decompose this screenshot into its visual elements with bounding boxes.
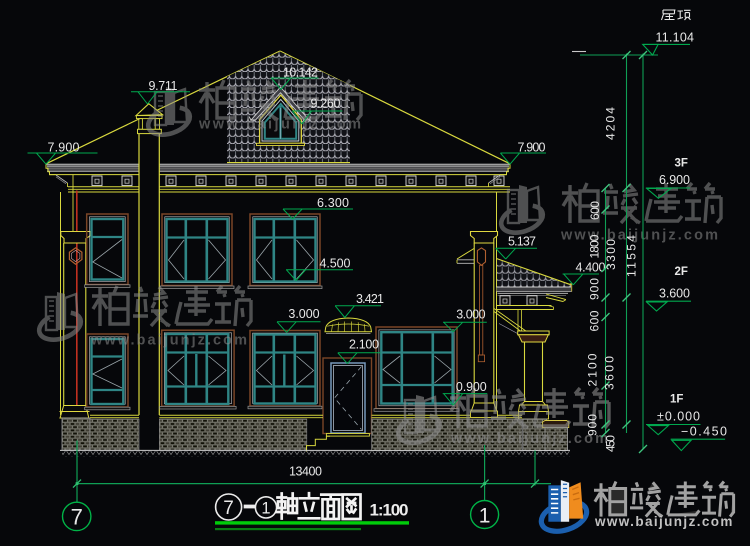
svg-text:7.900: 7.900 [48, 140, 80, 154]
svg-text:3300: 3300 [604, 239, 618, 270]
svg-text:900: 900 [588, 278, 602, 300]
svg-text:www.baijunjz.com: www.baijunjz.com [594, 514, 733, 529]
svg-text:3.600: 3.600 [659, 287, 690, 301]
svg-text:www.baijunjz.com: www.baijunjz.com [90, 333, 248, 349]
svg-text:−0.450: −0.450 [681, 425, 727, 439]
svg-text:13400: 13400 [289, 465, 322, 479]
svg-text:3F: 3F [675, 158, 688, 170]
svg-text:4204: 4204 [604, 107, 618, 140]
svg-text:9.711: 9.711 [149, 79, 178, 93]
svg-text:6.900: 6.900 [659, 173, 690, 187]
svg-text:7: 7 [71, 505, 83, 530]
svg-text:±0.000: ±0.000 [657, 410, 700, 424]
svg-text:4.500: 4.500 [320, 257, 351, 271]
svg-text:2100: 2100 [586, 353, 600, 386]
svg-text:1F: 1F [670, 394, 683, 406]
svg-text:600: 600 [588, 201, 602, 220]
svg-text:0.900: 0.900 [456, 380, 487, 394]
svg-text:600: 600 [588, 310, 602, 331]
svg-text:3.000: 3.000 [288, 307, 319, 321]
svg-text:www.baijunjz.com: www.baijunjz.com [198, 117, 362, 133]
svg-text:1: 1 [479, 505, 491, 528]
svg-text:5.137: 5.137 [508, 234, 536, 248]
svg-text:9.260: 9.260 [311, 96, 341, 110]
svg-text:6.300: 6.300 [317, 196, 349, 210]
svg-text:1800: 1800 [588, 234, 602, 258]
svg-text:1: 1 [261, 499, 270, 517]
svg-text:www.baijunjz.com: www.baijunjz.com [560, 228, 719, 244]
svg-text:10.142: 10.142 [283, 65, 318, 79]
svg-text:7.900: 7.900 [518, 140, 546, 154]
svg-text:900: 900 [586, 414, 600, 436]
svg-text:11.104: 11.104 [656, 31, 695, 45]
svg-text:7: 7 [223, 498, 234, 519]
svg-text:4.400: 4.400 [576, 260, 606, 274]
svg-text:2.100: 2.100 [349, 338, 379, 352]
svg-text:450: 450 [604, 435, 618, 452]
svg-text:3.421: 3.421 [356, 292, 384, 306]
svg-text:1:100: 1:100 [370, 500, 409, 519]
svg-text:2F: 2F [675, 266, 688, 278]
svg-text:3.000: 3.000 [456, 307, 485, 321]
